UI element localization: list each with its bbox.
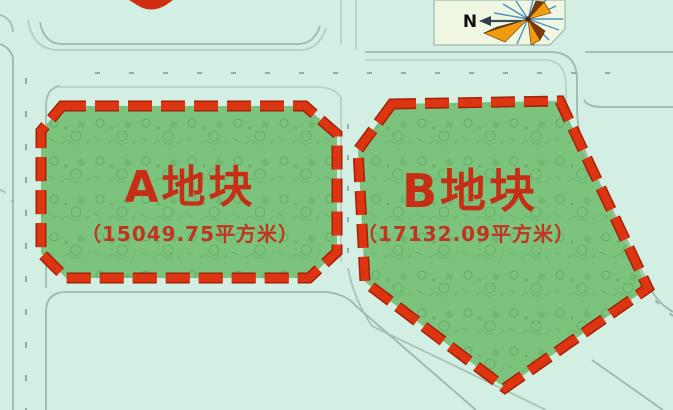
parcel-a-area-label: （15049.75平方米） bbox=[81, 222, 299, 246]
compass-north-label: N bbox=[463, 12, 477, 32]
parcel-b-label: B地块 bbox=[402, 164, 538, 218]
compass: N bbox=[434, 0, 565, 46]
map-canvas: A地块 （15049.75平方米） B地块 （17132.09平方米） bbox=[0, 0, 673, 410]
site-plan-map: A地块 （15049.75平方米） B地块 （17132.09平方米） bbox=[0, 0, 673, 410]
parcel-a-label: A地块 bbox=[124, 162, 255, 213]
parcel-a[interactable]: A地块 （15049.75平方米） bbox=[41, 106, 337, 278]
parcel-b-area-label: （17132.09平方米） bbox=[357, 222, 575, 246]
